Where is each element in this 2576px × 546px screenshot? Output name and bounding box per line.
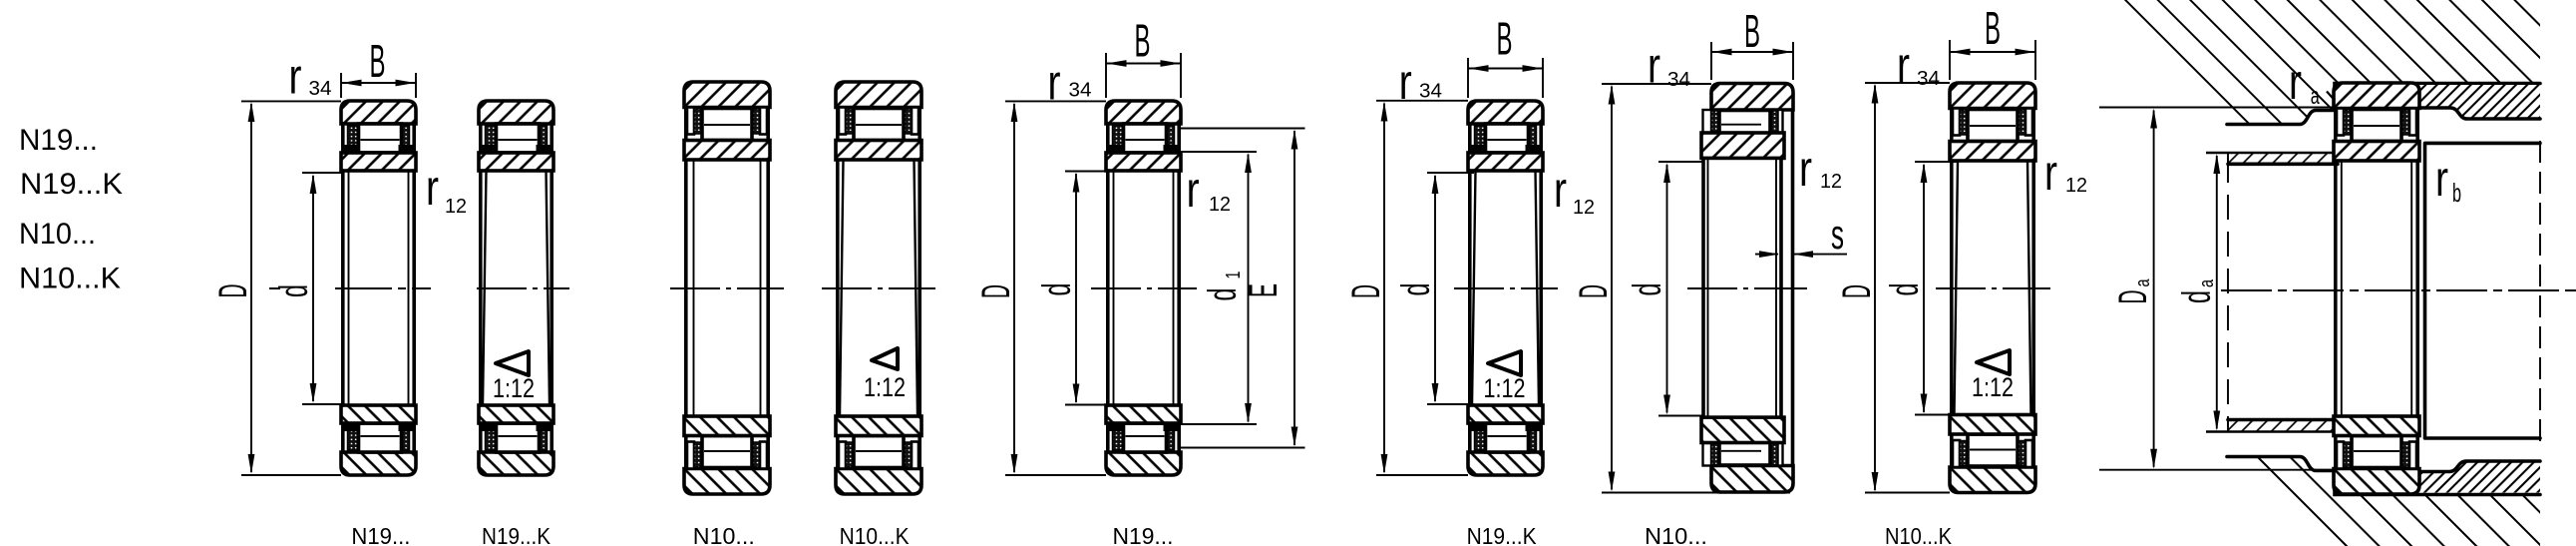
svg-text:B: B xyxy=(1985,2,2001,54)
svg-text:N10...: N10... xyxy=(1645,523,1707,546)
svg-text:12: 12 xyxy=(1209,194,1231,216)
svg-text:r: r xyxy=(2289,54,2302,110)
svg-text:a: a xyxy=(2196,278,2218,287)
svg-text:N19...: N19... xyxy=(19,124,98,157)
svg-text:r: r xyxy=(1897,37,1910,93)
svg-text:r: r xyxy=(2044,145,2057,201)
svg-text:N19...K: N19...K xyxy=(20,168,123,201)
svg-text:D: D xyxy=(1344,284,1388,298)
svg-text:r: r xyxy=(289,49,302,105)
svg-text:E: E xyxy=(1242,283,1286,297)
svg-text:34: 34 xyxy=(1917,68,1940,90)
svg-text:1: 1 xyxy=(1223,272,1245,279)
svg-text:N19...: N19... xyxy=(1113,523,1174,546)
svg-text:d: d xyxy=(1201,288,1245,301)
svg-text:r: r xyxy=(1187,162,1200,218)
svg-text:N10...K: N10...K xyxy=(1885,523,1953,546)
svg-text:a: a xyxy=(2132,278,2154,287)
svg-text:12: 12 xyxy=(445,196,467,218)
svg-text:B: B xyxy=(1744,5,1760,57)
svg-text:d: d xyxy=(1883,283,1927,296)
svg-text:N19...K: N19...K xyxy=(482,523,552,546)
svg-text:N19...: N19... xyxy=(351,523,410,546)
svg-text:D: D xyxy=(974,284,1018,298)
svg-text:D: D xyxy=(1835,284,1879,298)
svg-text:1:12: 1:12 xyxy=(1484,373,1526,403)
svg-text:1:12: 1:12 xyxy=(864,372,906,402)
svg-text:d: d xyxy=(1035,283,1079,296)
svg-text:N10...: N10... xyxy=(19,218,96,251)
svg-text:B: B xyxy=(1135,15,1151,67)
svg-text:12: 12 xyxy=(1573,197,1595,219)
svg-text:r: r xyxy=(426,160,439,216)
svg-text:d: d xyxy=(2175,290,2219,303)
svg-text:B: B xyxy=(1497,13,1513,65)
svg-text:34: 34 xyxy=(309,78,332,100)
svg-text:12: 12 xyxy=(1820,171,1842,193)
svg-text:r: r xyxy=(1554,162,1567,218)
svg-text:N19...K: N19...K xyxy=(1467,523,1538,546)
svg-text:34: 34 xyxy=(1667,69,1690,91)
svg-text:N10...K: N10...K xyxy=(840,523,911,546)
svg-text:d: d xyxy=(1626,283,1669,296)
svg-text:D: D xyxy=(1572,284,1616,298)
svg-text:34: 34 xyxy=(1419,81,1442,103)
svg-text:r: r xyxy=(2435,151,2448,207)
svg-text:1:12: 1:12 xyxy=(493,373,535,403)
svg-text:D: D xyxy=(211,284,255,298)
svg-text:b: b xyxy=(2452,178,2461,208)
svg-text:1:12: 1:12 xyxy=(1972,372,2014,402)
svg-text:34: 34 xyxy=(1069,80,1092,102)
svg-text:a: a xyxy=(2311,83,2320,110)
svg-text:r: r xyxy=(1799,141,1812,197)
svg-text:N10...K: N10...K xyxy=(19,263,121,295)
svg-text:D: D xyxy=(2111,290,2155,304)
svg-text:B: B xyxy=(370,35,386,87)
svg-text:N10...: N10... xyxy=(693,523,755,546)
svg-text:d: d xyxy=(272,284,316,297)
svg-text:r: r xyxy=(1648,38,1660,94)
svg-text:s: s xyxy=(1831,211,1844,258)
svg-text:d: d xyxy=(1394,283,1438,296)
svg-text:12: 12 xyxy=(2065,175,2087,197)
